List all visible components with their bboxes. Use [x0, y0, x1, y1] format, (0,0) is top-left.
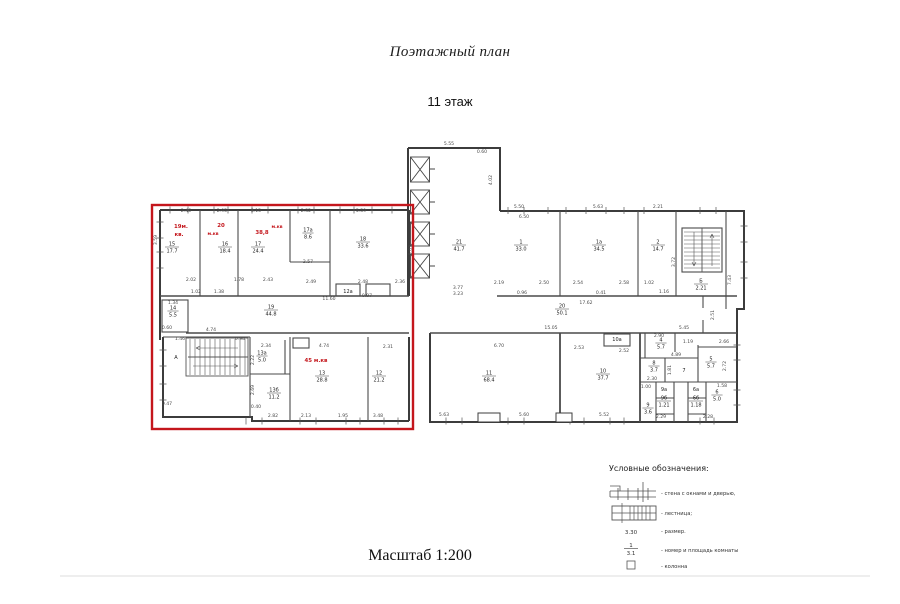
svg-text:41.7: 41.7	[453, 247, 464, 253]
svg-text:19: 19	[268, 305, 274, 311]
room-label: 133.0	[514, 240, 528, 253]
dim-label: 1.00	[641, 384, 651, 390]
dim-label: 6.70	[494, 343, 504, 349]
dim-label: 2.13	[301, 413, 311, 419]
dim-label: 5.03	[408, 245, 414, 255]
svg-text:6: 6	[715, 390, 718, 396]
dim-label: 2.31	[383, 344, 393, 350]
svg-text:28.8: 28.8	[316, 378, 327, 384]
apartment-label: 20	[217, 223, 225, 229]
dim-label: 2.36	[395, 279, 405, 285]
dim-label: 0.98	[235, 336, 245, 342]
svg-text:3.7: 3.7	[650, 368, 658, 374]
dim-label: 2.53	[574, 345, 584, 351]
svg-text:17.7: 17.7	[166, 249, 177, 255]
svg-text:8.6: 8.6	[304, 235, 312, 241]
dim-label: 11.60	[322, 296, 335, 302]
dim-label: 3.23	[453, 291, 463, 297]
room-label: 17а8.6	[302, 228, 313, 241]
dim-label: 1.81	[667, 365, 673, 375]
floor-plan-page: Поэтажный план 11 этаж Масштаб 1:200	[0, 0, 900, 604]
svg-text:14: 14	[170, 306, 176, 312]
legend-room-num: 1	[629, 543, 633, 549]
room-label: 13а5.0	[256, 351, 267, 364]
legend-symbol-stairs	[612, 503, 656, 523]
svg-text:21: 21	[456, 240, 462, 246]
dim-label: 2.49	[306, 279, 316, 285]
apartment-label: 19м.	[174, 224, 188, 230]
svg-text:5.5: 5.5	[169, 313, 177, 319]
svg-text:12: 12	[376, 371, 382, 377]
svg-text:13а: 13а	[257, 351, 266, 357]
dim-label: 17.62	[579, 300, 592, 306]
svg-text:8: 8	[652, 361, 655, 367]
svg-text:17а: 17а	[303, 228, 312, 234]
svg-text:11.2: 11.2	[268, 395, 279, 401]
dim-label: 1.78	[234, 277, 244, 283]
svg-text:1.21: 1.21	[658, 403, 669, 409]
svg-text:44.8: 44.8	[265, 312, 276, 318]
room-mark: 6а	[693, 387, 699, 393]
apartment-label: м.кв	[207, 232, 218, 237]
svg-text:11: 11	[486, 371, 492, 377]
room-mark: А	[174, 355, 178, 361]
legend-room-area: 3.1	[627, 551, 636, 557]
svg-text:Б: Б	[699, 279, 703, 285]
svg-text:50.1: 50.1	[556, 311, 567, 317]
dim-label: 2.51	[710, 310, 716, 320]
legend-dim-example: 3.30	[625, 530, 638, 536]
dim-label: 0.96	[517, 290, 527, 296]
dim-label: 2.21	[653, 204, 663, 210]
dim-label: 1.95	[338, 413, 348, 419]
dim-label: 2.32	[301, 208, 311, 214]
room-mark: 10а	[612, 337, 621, 343]
interior-walls	[160, 210, 737, 422]
apartment-label: м.кв	[271, 225, 282, 230]
room-label: 1724.4	[251, 242, 265, 255]
dim-label: 1.34	[168, 300, 178, 306]
room-label: 1а34.5	[592, 240, 606, 253]
room-mark: 12а	[343, 289, 352, 295]
room-mark: 7	[682, 368, 685, 374]
dim-label: 2.54	[573, 280, 583, 286]
room-label: 55.7	[705, 357, 716, 370]
dim-label: 2.57	[303, 259, 313, 265]
dim-label: 5.50	[514, 204, 524, 210]
dim-label: 2.28	[703, 414, 713, 420]
dim-label: 0.60	[477, 149, 487, 155]
svg-text:20: 20	[559, 304, 565, 310]
svg-text:37.7: 37.7	[597, 376, 608, 382]
svg-text:9б: 9б	[661, 396, 667, 402]
dim-label: 2.34	[261, 343, 271, 349]
svg-text:15: 15	[169, 242, 175, 248]
dim-label: 2.69	[250, 385, 256, 395]
dim-label: 2.95	[217, 208, 227, 214]
legend-symbol-wall	[610, 482, 656, 502]
apartment-label: 45 м.кв	[305, 358, 328, 364]
dim-label: 2.72	[722, 361, 728, 371]
dim-label: 2.50	[539, 280, 549, 286]
dim-label: 2.48	[358, 279, 368, 285]
apartment-label: кв.	[174, 232, 183, 238]
svg-text:2: 2	[656, 240, 659, 246]
svg-text:5.7: 5.7	[707, 364, 715, 370]
dim-label: 2.46	[181, 208, 191, 214]
svg-text:13б: 13б	[269, 388, 278, 394]
dim-label: 15.05	[544, 325, 557, 331]
dim-label: 0.40	[251, 404, 261, 410]
legend-label: - колонна	[661, 564, 687, 570]
dim-label: 0.47	[162, 401, 172, 407]
dim-label: 4.02	[488, 175, 494, 185]
dim-label: 1.02	[191, 289, 201, 295]
svg-text:1а: 1а	[596, 240, 602, 246]
room-label: 1618.4	[218, 242, 232, 255]
svg-text:5.0: 5.0	[713, 397, 721, 403]
legend-label: - лестница;	[661, 511, 692, 517]
dim-label: 2.02	[186, 277, 196, 283]
dim-label: 5.63	[593, 204, 603, 210]
dim-label: 2.58	[619, 280, 629, 286]
dim-label: 7.43	[727, 275, 733, 285]
dim-label: 2.90	[654, 333, 664, 339]
dim-label: 6.50	[519, 214, 529, 220]
dim-label: 5.52	[599, 412, 609, 418]
dim-label: 3.15	[251, 208, 261, 214]
highlight-rectangle	[152, 205, 413, 429]
legend-label: - размер.	[661, 529, 686, 535]
svg-text:5.0: 5.0	[258, 358, 266, 364]
dim-label: 2.43	[263, 277, 273, 283]
dim-label: 1.38	[214, 289, 224, 295]
dim-label: 5.60	[519, 412, 529, 418]
room-label: 1944.8	[264, 305, 278, 318]
dim-label: 1.19	[683, 339, 693, 345]
dim-label: 2.19	[494, 280, 504, 286]
dim-label: 0.41	[596, 290, 606, 296]
room-label: 1168.4	[482, 371, 496, 384]
room-label: 1037.7	[596, 369, 610, 382]
dim-label: 1.46	[175, 336, 185, 342]
room-label: 13б11.2	[267, 388, 281, 401]
svg-text:16: 16	[222, 242, 228, 248]
svg-text:2.21: 2.21	[695, 286, 706, 292]
svg-text:1: 1	[519, 240, 522, 246]
room-label: 2141.7	[452, 240, 466, 253]
svg-text:18.4: 18.4	[219, 249, 230, 255]
dim-label: 2.52	[619, 348, 629, 354]
dim-label: 2.82	[268, 413, 278, 419]
svg-text:68.4: 68.4	[483, 378, 494, 384]
legend-label: - стена с окнами и дверью,	[661, 491, 736, 497]
room-label: 45.7	[655, 338, 666, 351]
svg-text:9: 9	[646, 403, 649, 409]
svg-text:5.7: 5.7	[657, 345, 665, 351]
dim-label: 1.02	[644, 280, 654, 286]
dim-label: 2.66	[719, 339, 729, 345]
svg-text:24.4: 24.4	[252, 249, 263, 255]
dim-label: 0.60	[162, 325, 172, 331]
legend: Условные обозначения: - стена с окнами и…	[609, 464, 738, 570]
dimension-labels: 2.46 2.95 3.15 2.32 5.59 3.59 2.02 1.78 …	[153, 141, 733, 420]
dim-label: 5.63	[439, 412, 449, 418]
room-label: 145.5	[167, 306, 178, 319]
dim-label: 3.72	[671, 257, 677, 267]
staircase-right	[684, 228, 720, 272]
legend-symbol-room-number: 1 3.1	[624, 543, 638, 557]
svg-text:34.5: 34.5	[593, 247, 604, 253]
room-mark: 9а	[661, 387, 667, 393]
dim-label: 3.48	[373, 413, 383, 419]
room-label: 83.7	[648, 361, 659, 374]
svg-text:10: 10	[600, 369, 606, 375]
apartment-label: 38,8	[255, 230, 269, 236]
dim-label: 5.45	[679, 325, 689, 331]
svg-text:33.0: 33.0	[515, 247, 526, 253]
room-label: 65.0	[711, 390, 722, 403]
legend-title: Условные обозначения:	[609, 464, 709, 473]
dim-label: 0.97	[362, 293, 372, 299]
dim-label: 2.30	[647, 376, 657, 382]
svg-text:1.18: 1.18	[690, 403, 701, 409]
room-label: 1328.8	[315, 371, 329, 384]
dim-label: 3.77	[453, 285, 463, 291]
room-label: 93.6	[642, 403, 653, 416]
dim-label: 3.59	[153, 235, 159, 245]
room-label: Б2.21	[694, 279, 708, 292]
svg-text:5: 5	[709, 357, 712, 363]
room-label: 214.7	[651, 240, 665, 253]
room-label: 1221.2	[372, 371, 386, 384]
svg-text:18: 18	[360, 237, 366, 243]
svg-text:6б: 6б	[693, 396, 699, 402]
dim-label: 2.29	[656, 414, 666, 420]
dim-label: 4.89	[671, 352, 681, 358]
svg-text:3.6: 3.6	[644, 410, 652, 416]
dim-label: 5.55	[444, 141, 454, 147]
dim-label: 4.74	[206, 327, 216, 333]
svg-text:33.6: 33.6	[357, 244, 368, 250]
legend-symbol-column	[627, 561, 635, 569]
svg-text:21.2: 21.2	[373, 378, 384, 384]
floor-plan-drawing: 19м. кв. 20 м.кв 38,8 м.кв 45 м.кв 1517.…	[0, 0, 900, 604]
room-label: 1517.7	[165, 242, 179, 255]
dim-label: 4.74	[319, 343, 329, 349]
dim-label: 5.59	[356, 208, 366, 214]
dim-label: 1.58	[717, 383, 727, 389]
svg-text:13: 13	[319, 371, 325, 377]
room-label: 2050.1	[555, 304, 569, 317]
svg-text:17: 17	[255, 242, 261, 248]
legend-label: - номер и площадь комнаты	[661, 548, 738, 554]
dim-label: 2.22	[250, 355, 256, 365]
dim-label: 1.16	[659, 289, 669, 295]
svg-text:14.7: 14.7	[652, 247, 663, 253]
room-labels: 1517.7 1618.4 1724.4 17а8.6 1833.6 145.5…	[165, 228, 723, 416]
room-label: 1833.6	[356, 237, 370, 250]
staircase-left	[186, 338, 248, 376]
